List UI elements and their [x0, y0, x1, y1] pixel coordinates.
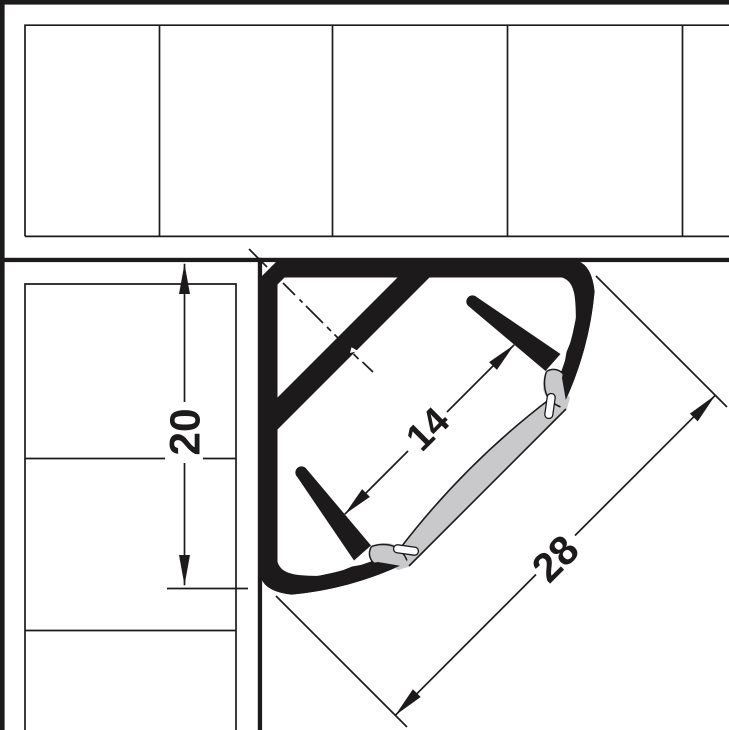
svg-text:20: 20: [163, 408, 210, 455]
